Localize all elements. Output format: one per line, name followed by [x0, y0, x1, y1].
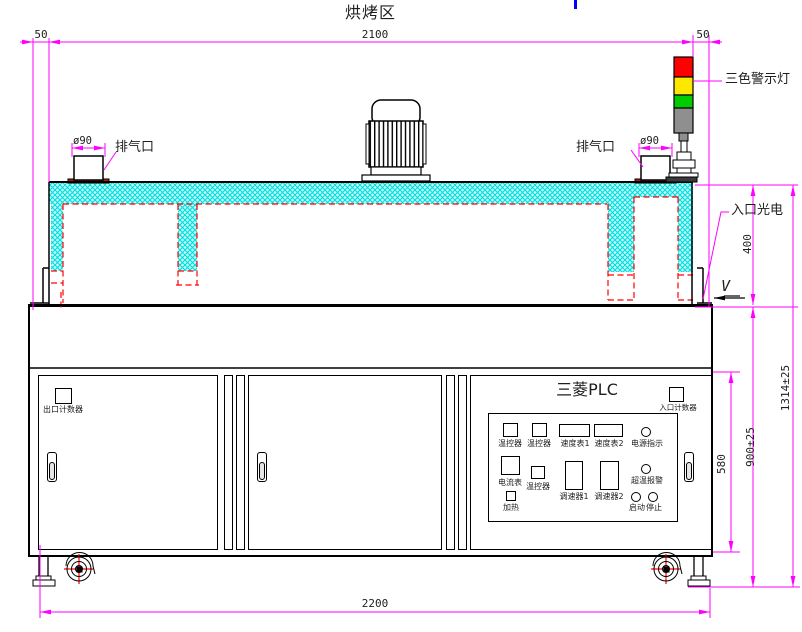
middle-partition-insulation — [178, 204, 197, 271]
lamp-bracket — [677, 168, 691, 173]
foot-posts — [39, 557, 703, 577]
caster-crosshairs — [64, 554, 681, 584]
dim-chamber-height: 400 — [742, 224, 754, 264]
caster-left — [66, 553, 95, 582]
motor-base-plate — [362, 175, 430, 181]
lamp-bracket — [673, 160, 695, 168]
caster-right — [653, 553, 682, 582]
left-wall-insulation — [51, 204, 63, 271]
entry-sensor-label: 入口光电 — [731, 204, 783, 218]
dim-exhaust-right-dia: ø90 — [640, 136, 659, 148]
dim-total-height: 1314±25 — [780, 353, 792, 423]
foot-base-left — [33, 580, 55, 586]
direction-mark: V — [721, 278, 730, 295]
motor-foot — [371, 167, 421, 175]
motor-side-tab — [366, 124, 369, 164]
warning-lamp-red — [674, 57, 693, 77]
warning-lamp-yellow — [674, 77, 693, 95]
structure-group — [28, 57, 745, 586]
dim-door-height: 580 — [716, 444, 728, 484]
oven-technical-drawing: 出口计数器 三菱PLC 入口计数器 温控器 温控器 速度表1 速度表2 电源指示… — [0, 0, 802, 632]
dim-right-offset: 50 — [695, 29, 711, 41]
dim-left-offset: 50 — [33, 29, 49, 41]
top-insulation-slab — [49, 183, 693, 204]
dim-base-width: 2200 — [355, 598, 395, 610]
lamp-mount-base — [666, 177, 697, 182]
warning-light-label: 三色警示灯 — [725, 73, 790, 87]
dim-exhaust-left-dia: ø90 — [73, 136, 92, 148]
motor-finned-body — [369, 121, 423, 167]
lamp-bracket — [677, 152, 691, 160]
exhaust-port-left — [74, 156, 103, 180]
foot-collar-left — [36, 576, 51, 580]
exhaust-right-label: 排气口 — [576, 141, 615, 155]
exhaust-port-right — [641, 156, 670, 180]
exhaust-left-label: 排气口 — [115, 141, 154, 155]
lamp-pole — [681, 141, 687, 152]
lamp-mount-plate — [669, 173, 698, 177]
lamp-connector — [679, 133, 688, 141]
drawing-title: 烘烤区 — [345, 4, 396, 22]
warning-lamp-base — [674, 108, 693, 133]
conveyor-end-right — [697, 268, 712, 303]
entry-channel — [634, 197, 678, 300]
cursor-mark — [574, 0, 577, 9]
chamber-outline-group — [51, 157, 693, 584]
foot-base-right — [688, 580, 710, 586]
dim-top-width: 2100 — [355, 29, 395, 41]
dim-body-height: 900±25 — [745, 417, 757, 477]
motor-side-tab — [423, 124, 426, 164]
foot-collar-right — [691, 576, 706, 580]
warning-lamp-green — [674, 95, 693, 108]
drawing-linework — [0, 0, 802, 632]
